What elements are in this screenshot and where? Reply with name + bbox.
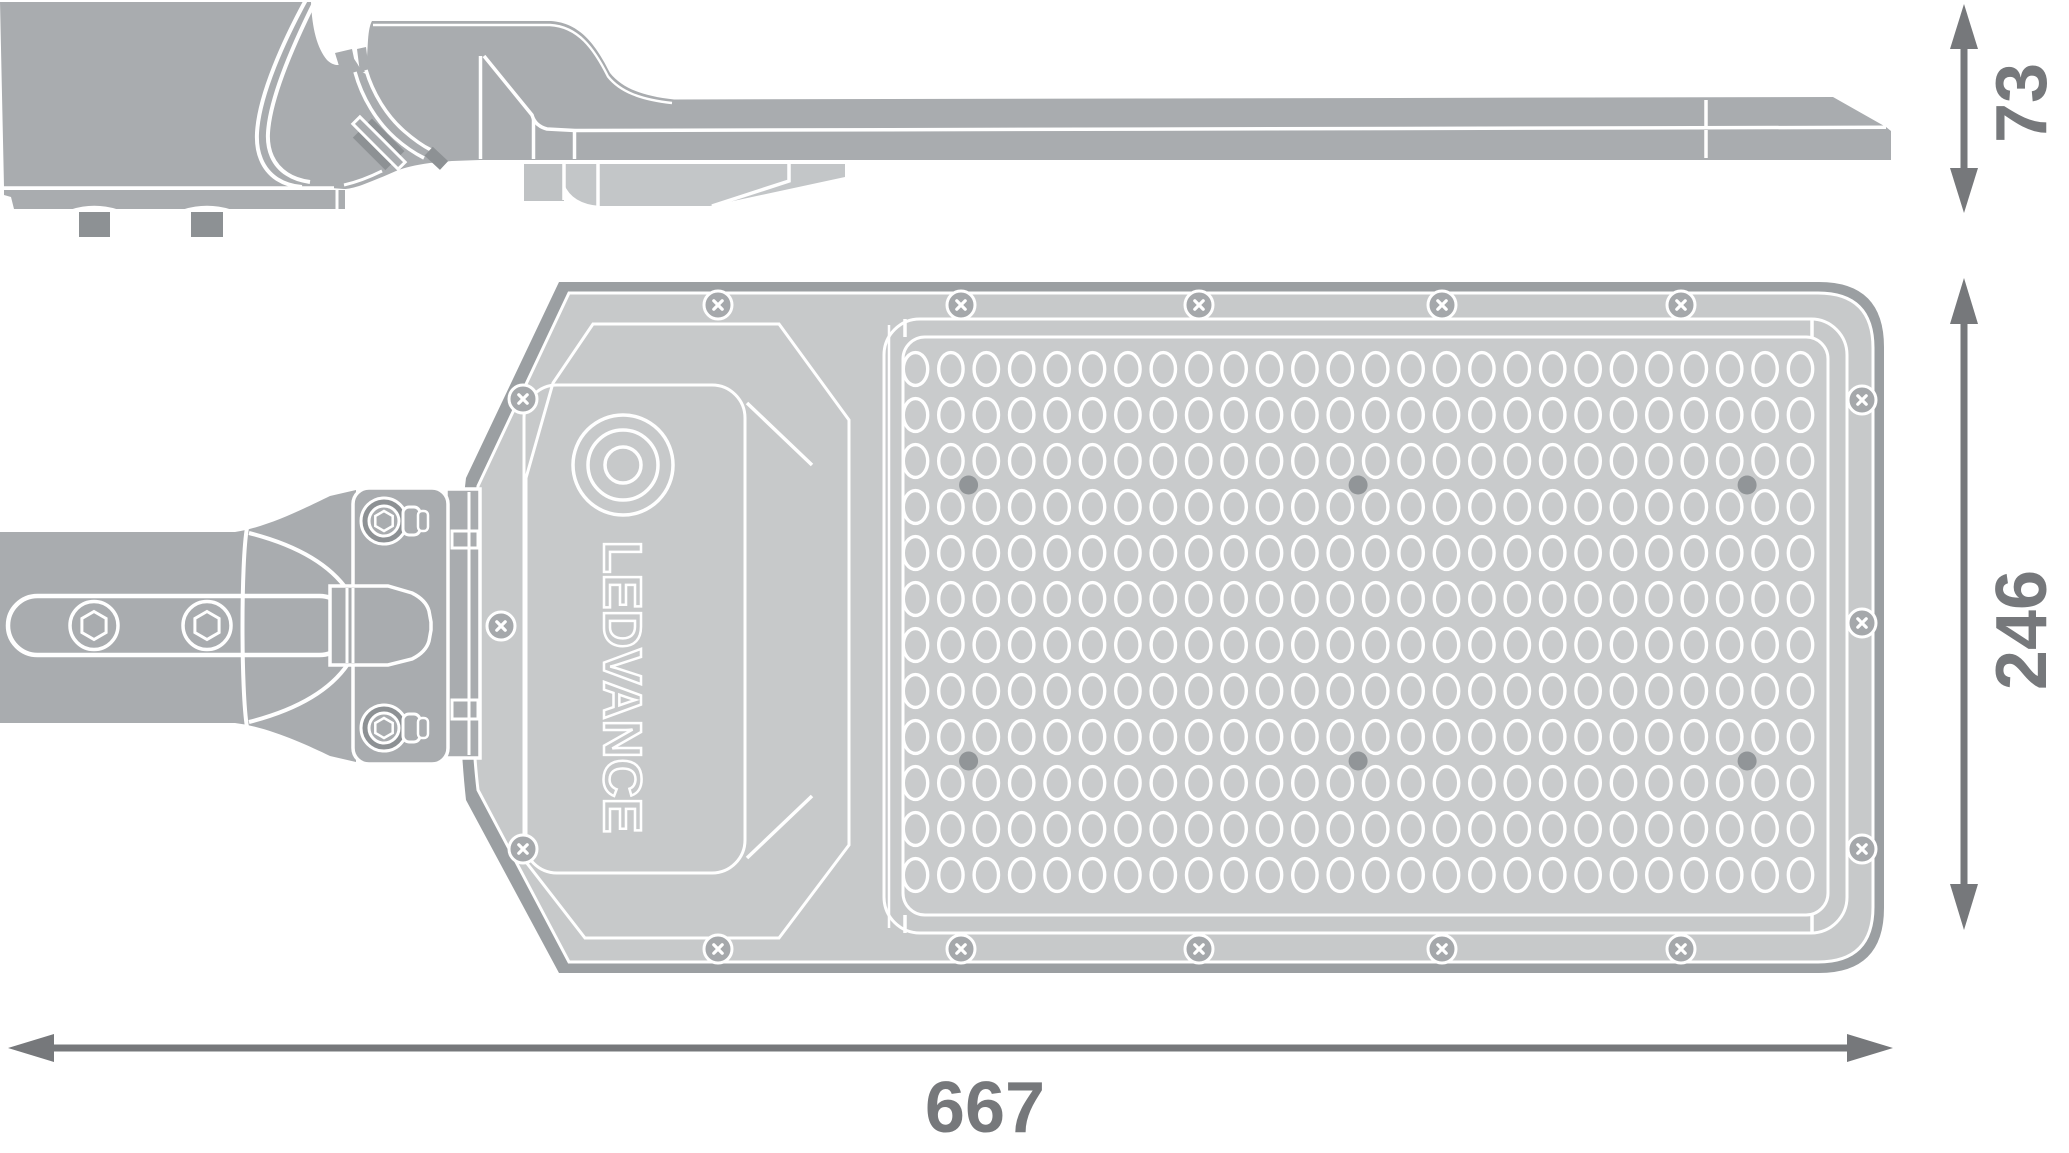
svg-text:73: 73 (1982, 63, 2062, 143)
svg-text:667: 667 (925, 1068, 1045, 1148)
svg-text:246: 246 (1982, 570, 2062, 690)
svg-text:LEDVANCE: LEDVANCE (592, 540, 652, 833)
